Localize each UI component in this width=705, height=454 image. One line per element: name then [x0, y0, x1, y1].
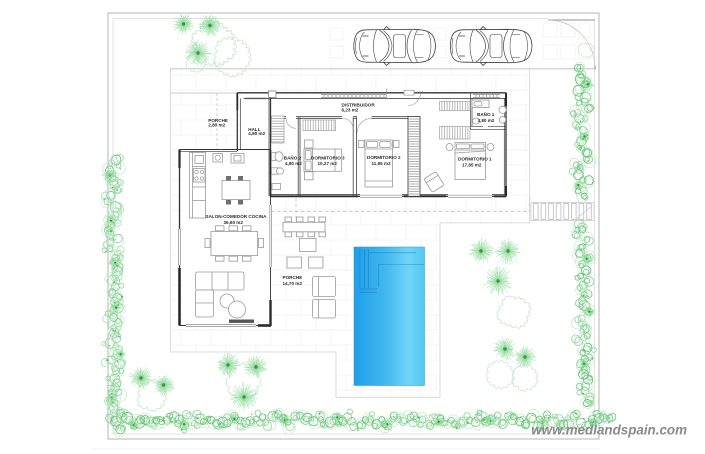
svg-text:14,70 m2: 14,70 m2	[283, 281, 303, 286]
svg-text:PORCHE: PORCHE	[283, 275, 303, 280]
svg-text:11,95 m2: 11,95 m2	[372, 161, 392, 166]
svg-text:4,80 m2: 4,80 m2	[285, 161, 302, 166]
svg-text:10,27 m2: 10,27 m2	[318, 161, 338, 166]
svg-text:4,80 m2: 4,80 m2	[248, 131, 265, 136]
svg-text:BAÑO 2: BAÑO 2	[284, 155, 302, 161]
svg-text:6,23 m2: 6,23 m2	[342, 108, 359, 113]
svg-text:36,60 m2: 36,60 m2	[224, 220, 244, 225]
svg-text:DORMITORIO 3: DORMITORIO 3	[311, 155, 345, 160]
svg-text:3,80 m2: 3,80 m2	[478, 118, 495, 123]
svg-text:www.medlandspain.com: www.medlandspain.com	[531, 423, 687, 438]
svg-text:BAÑO 1: BAÑO 1	[477, 111, 495, 117]
svg-text:17,85 m2: 17,85 m2	[462, 163, 482, 168]
svg-text:SALON-COMEDOR COCINA: SALON-COMEDOR COCINA	[206, 214, 268, 219]
svg-text:DORMITORIO 2: DORMITORIO 2	[367, 155, 401, 160]
svg-text:DORMITORIO 1: DORMITORIO 1	[458, 157, 492, 162]
svg-text:2,80 m2: 2,80 m2	[208, 123, 225, 128]
